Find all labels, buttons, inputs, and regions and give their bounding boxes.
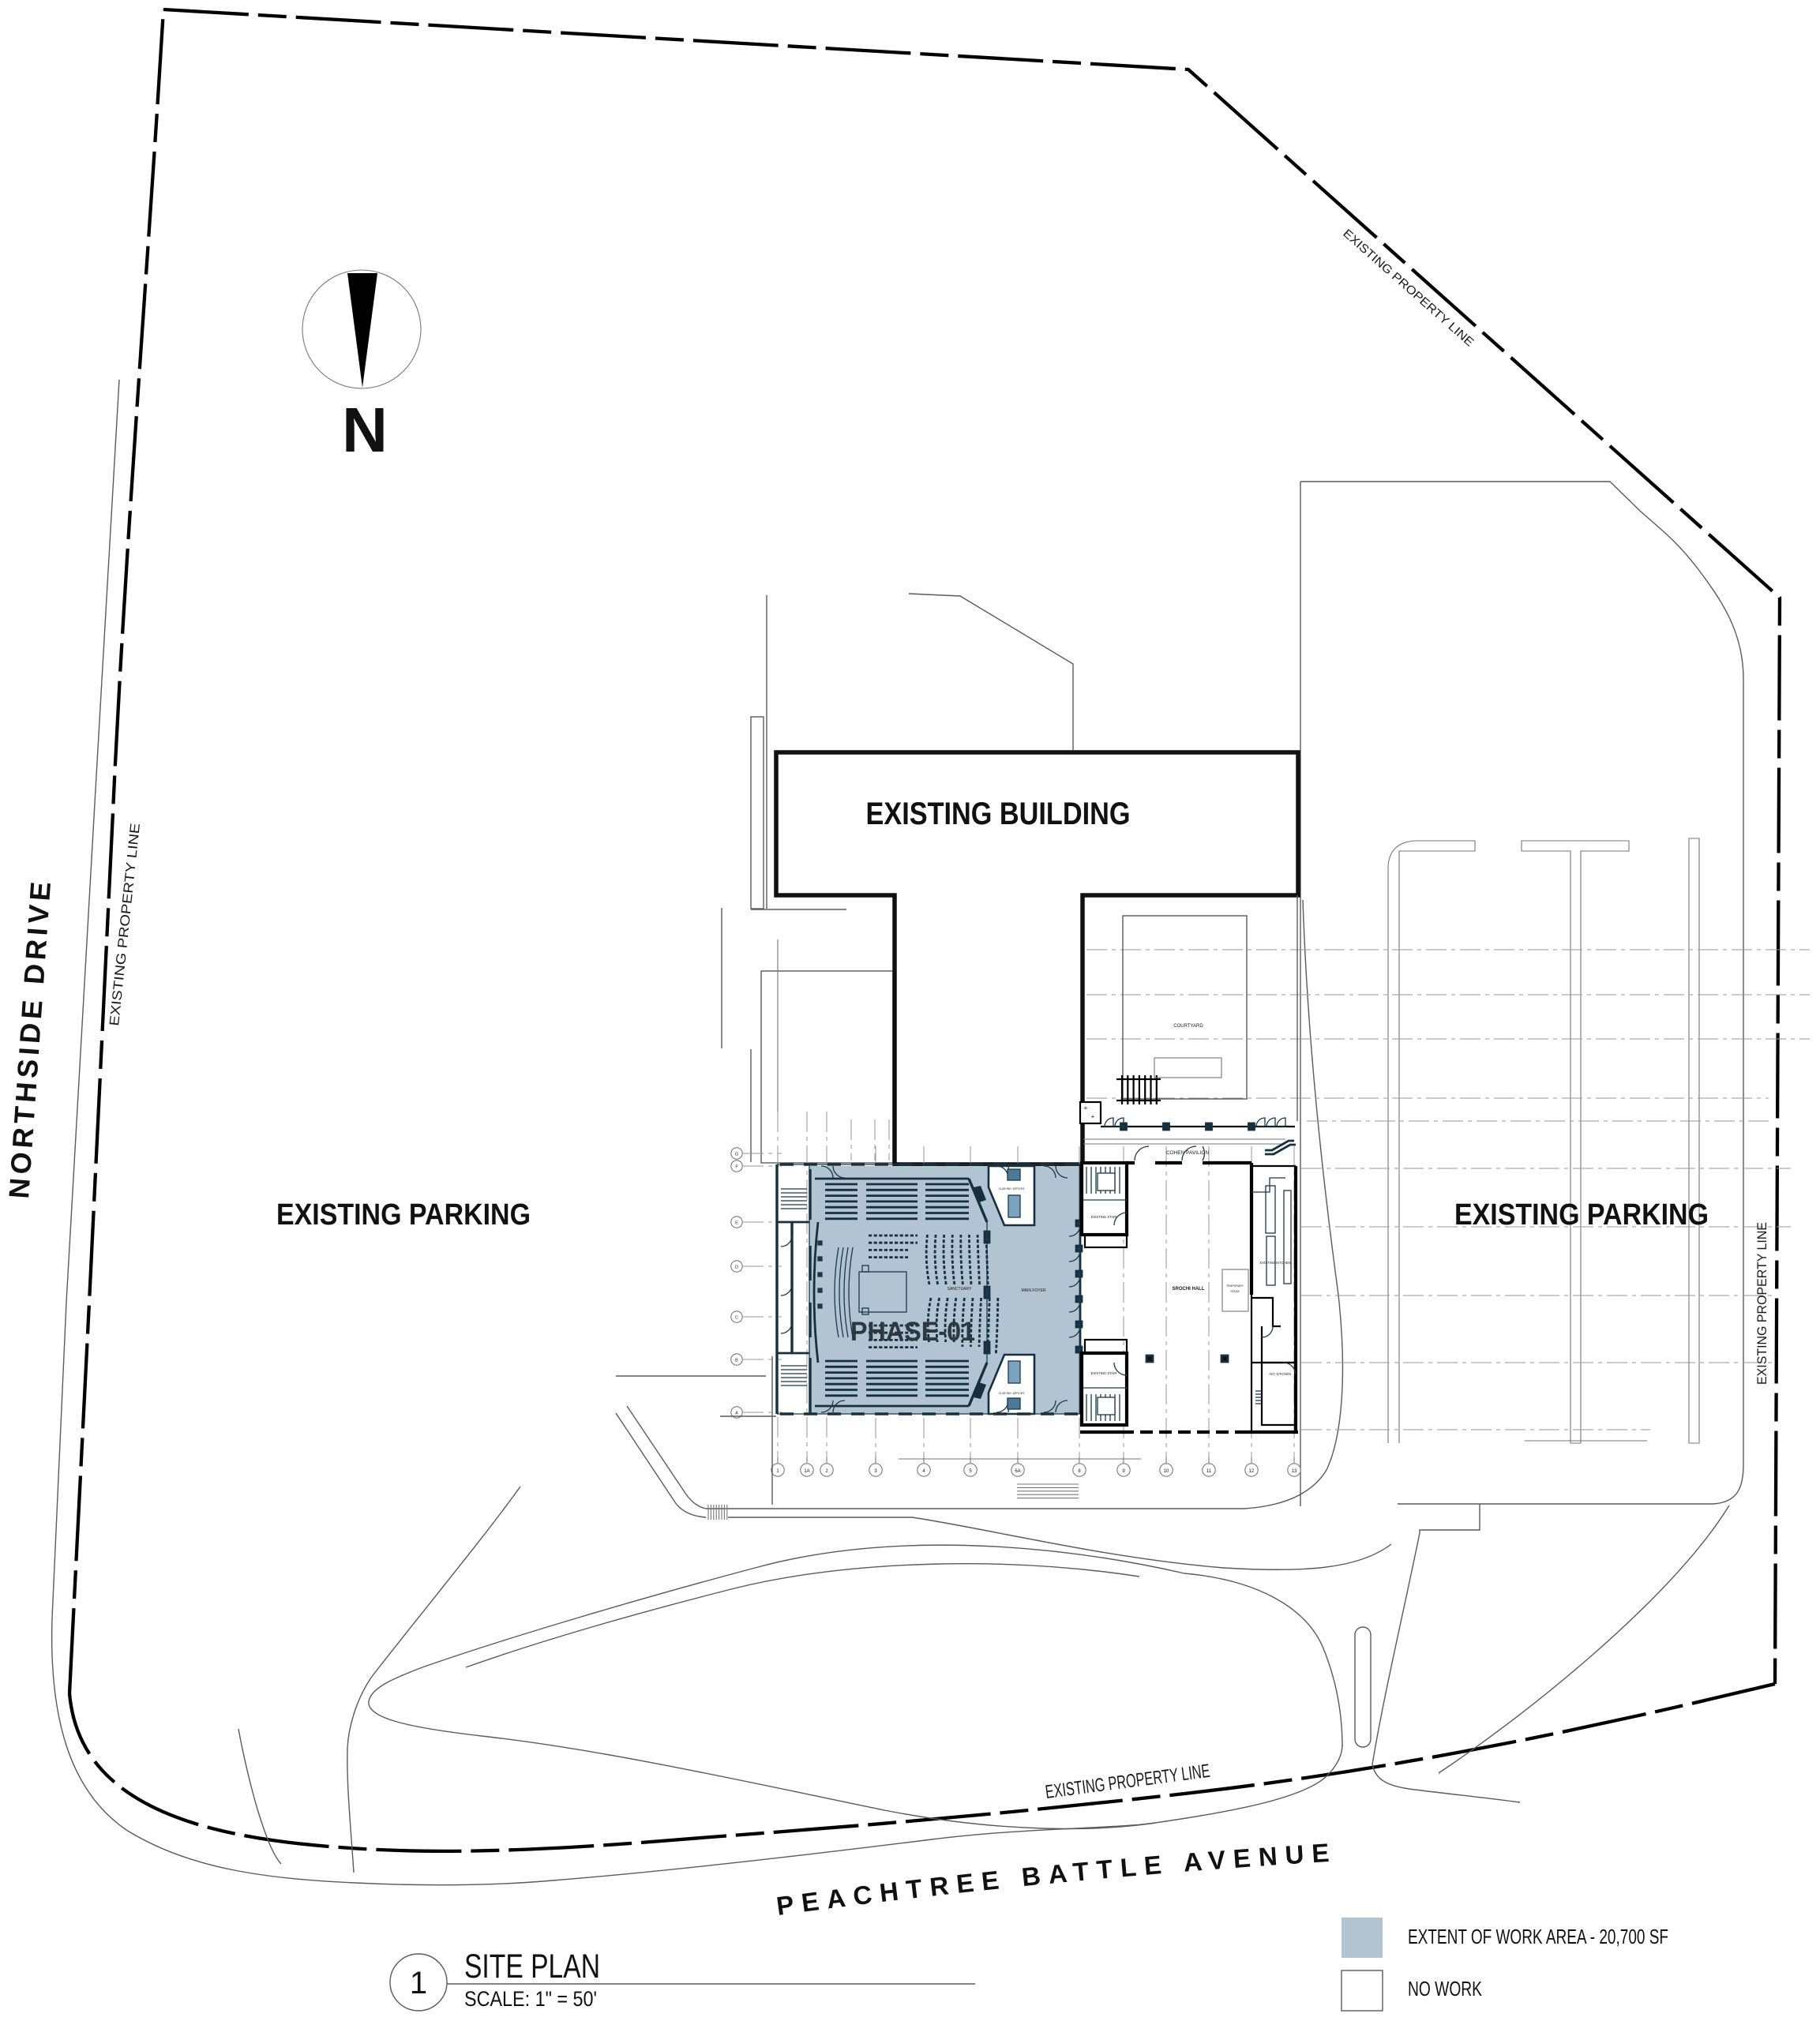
svg-text:CLUB RM / OFFICES: CLUB RM / OFFICES [999, 1187, 1026, 1190]
svg-text:EXISTING STAIR: EXISTING STAIR [1091, 1371, 1117, 1375]
svg-text:EXISTING BUILDING: EXISTING BUILDING [866, 797, 1131, 831]
svg-text:SROCHI HALL: SROCHI HALL [1173, 1287, 1205, 1292]
svg-text:EXISTING PARKING: EXISTING PARKING [1454, 1198, 1709, 1232]
svg-text:AVC KITCHEN: AVC KITCHEN [1269, 1372, 1291, 1376]
svg-text:EXISTING STAIR: EXISTING STAIR [1091, 1215, 1117, 1219]
svg-text:+: + [1084, 1104, 1088, 1112]
svg-text:SITE PLAN: SITE PLAN [464, 1948, 600, 1985]
svg-text:COHEN PAVILION: COHEN PAVILION [1166, 1150, 1210, 1156]
svg-text:STAGE: STAGE [1230, 1290, 1240, 1293]
svg-text:PHASE-01: PHASE-01 [850, 1317, 975, 1347]
svg-text:MAIN FOYER: MAIN FOYER [1021, 1288, 1046, 1293]
svg-text:SANCTUARY: SANCTUARY [948, 1287, 972, 1292]
svg-text:1: 1 [410, 1966, 427, 2000]
svg-text:G: G [735, 1153, 738, 1157]
svg-text:SCALE: 1" = 50': SCALE: 1" = 50' [464, 1987, 597, 2011]
svg-text:E: E [735, 1221, 738, 1226]
svg-text:C: C [735, 1316, 738, 1321]
svg-text:11: 11 [1206, 1469, 1212, 1474]
svg-text:1A: 1A [804, 1469, 809, 1474]
svg-text:EXISTING PROPERTY LINE: EXISTING PROPERTY LINE [1754, 1222, 1769, 1385]
svg-text:10: 10 [1164, 1469, 1169, 1474]
svg-text:COURTYARD: COURTYARD [1173, 1024, 1203, 1029]
svg-text:D: D [735, 1265, 738, 1270]
svg-text:TEMPORARY: TEMPORARY [1226, 1284, 1244, 1288]
svg-text:A: A [735, 1412, 738, 1416]
svg-text:B: B [735, 1359, 738, 1363]
svg-text:6A: 6A [1015, 1469, 1020, 1474]
svg-text:12: 12 [1249, 1469, 1255, 1474]
svg-text:EXISTING PARKING: EXISTING PARKING [276, 1198, 531, 1232]
svg-text:+: + [1091, 1113, 1095, 1120]
svg-text:NO WORK: NO WORK [1408, 1977, 1482, 2000]
svg-text:EXTENT OF WORK AREA - 20,700 S: EXTENT OF WORK AREA - 20,700 SF [1408, 1925, 1668, 1948]
svg-text:N: N [342, 395, 388, 465]
svg-text:13: 13 [1292, 1469, 1297, 1474]
svg-text:EXISTING KITCHEN: EXISTING KITCHEN [1259, 1261, 1290, 1265]
svg-text:CLUB RM / OFFICES: CLUB RM / OFFICES [999, 1392, 1026, 1395]
